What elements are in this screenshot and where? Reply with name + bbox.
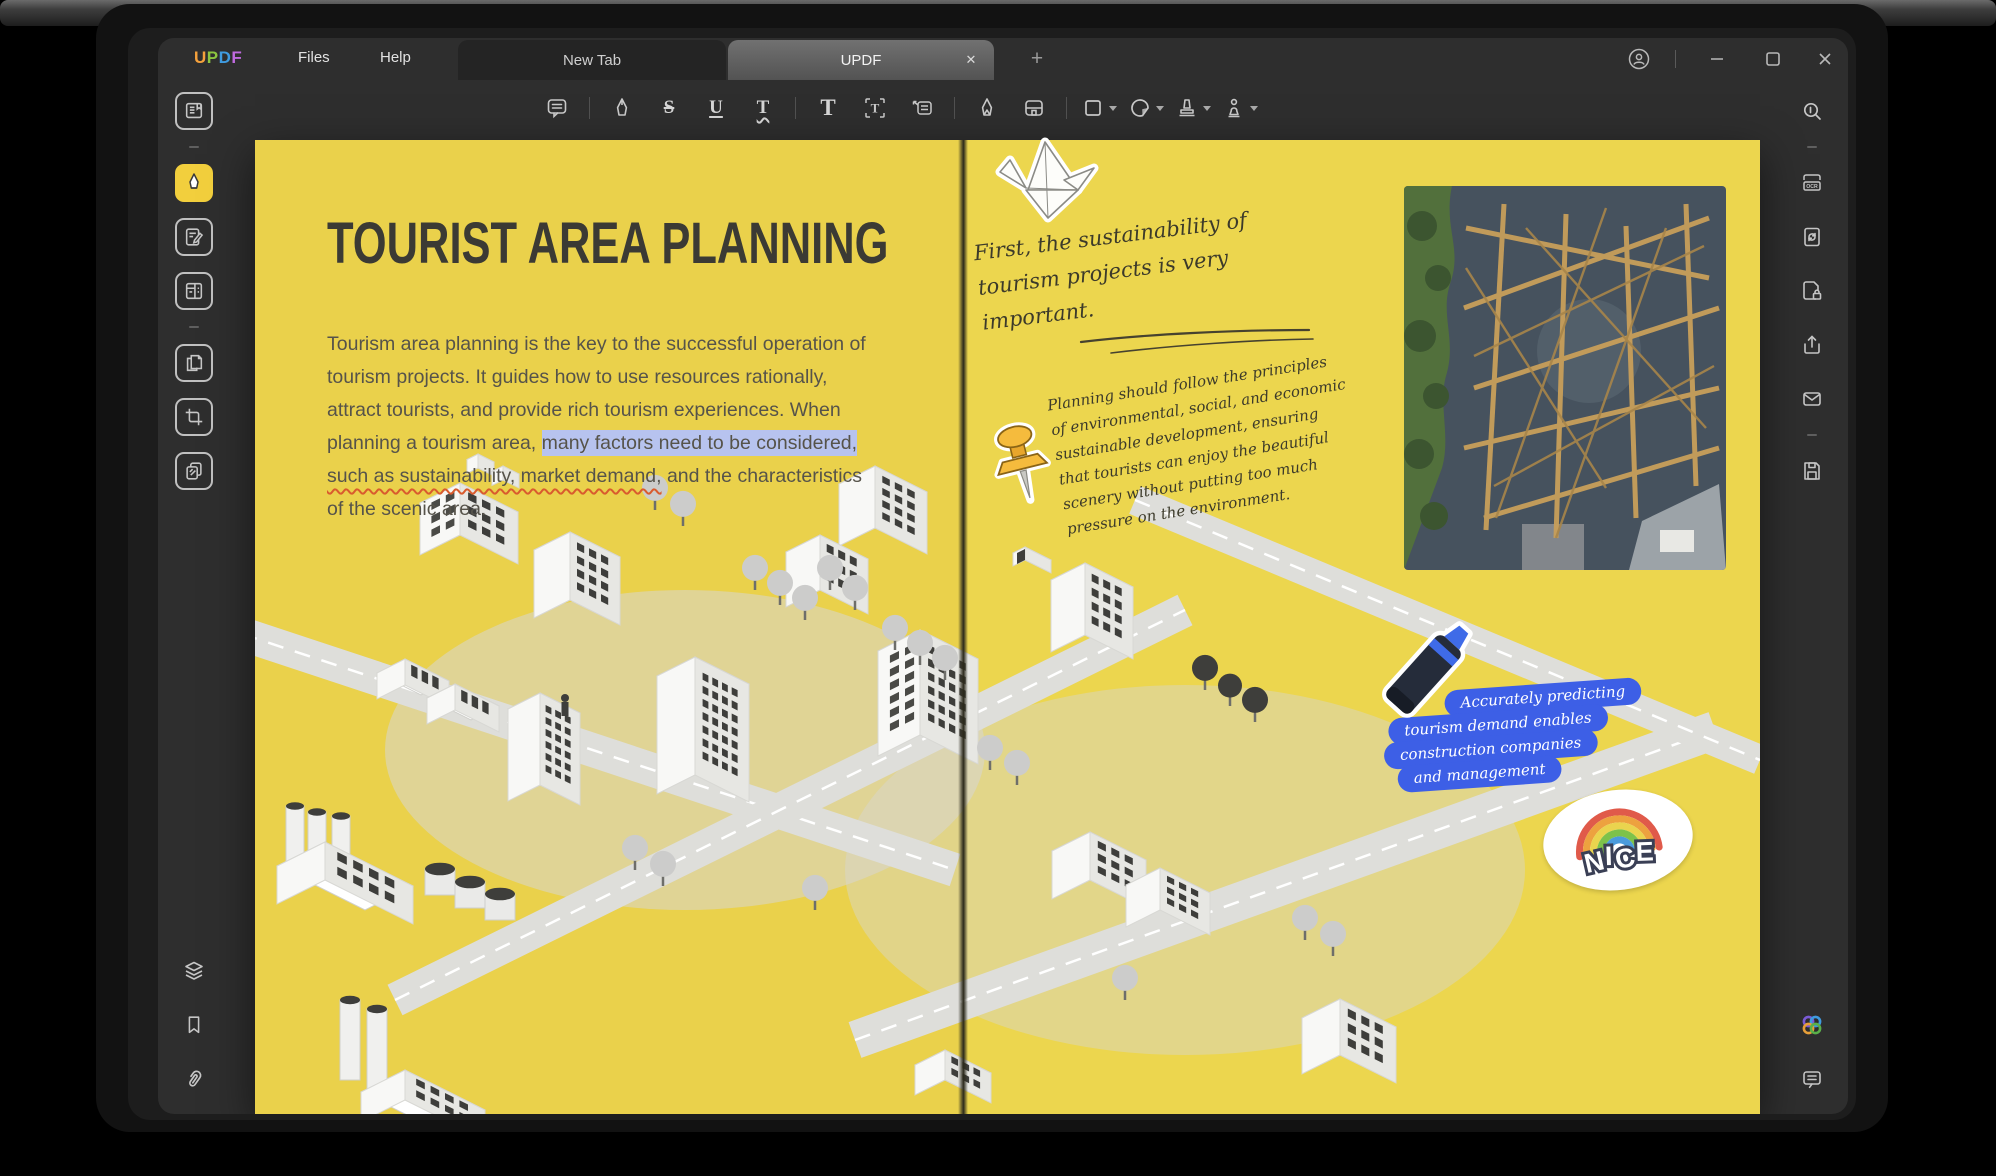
stamp-icon xyxy=(1175,96,1199,120)
body-paragraph: Tourism area planning is the key to the … xyxy=(327,328,912,526)
squiggly-underline-tool-button[interactable]: T xyxy=(744,90,782,126)
sidebar-item-email[interactable] xyxy=(1793,380,1831,418)
marker-pen-sticker[interactable] xyxy=(1363,610,1483,740)
highlighter-icon xyxy=(610,96,634,120)
updf-window: UPDF Files Help New Tab UPDF ✕ + xyxy=(128,28,1856,1120)
sidebar-item-bookmarks[interactable] xyxy=(175,1006,213,1044)
separator xyxy=(954,97,955,119)
sidebar-item-convert[interactable] xyxy=(1793,218,1831,256)
bookmark-icon xyxy=(183,1014,205,1036)
comment-tool-button[interactable] xyxy=(538,90,576,126)
chevron-down-icon xyxy=(1250,106,1258,111)
text-comment-tool-button[interactable]: T xyxy=(809,90,847,126)
underline-tool-button[interactable]: U xyxy=(697,90,735,126)
separator xyxy=(1066,97,1067,119)
pen-icon xyxy=(975,96,999,120)
sidebar-item-ai-assistant[interactable] xyxy=(1793,1006,1831,1044)
right-sidebar: OCR xyxy=(1776,84,1848,1114)
separator xyxy=(189,146,199,148)
separator xyxy=(189,326,199,328)
sidebar-item-ocr[interactable]: OCR xyxy=(1793,164,1831,202)
text-callout-icon xyxy=(910,96,934,120)
sidebar-item-thumbnails[interactable] xyxy=(175,952,213,990)
crane-sticker[interactable] xyxy=(990,136,1100,236)
highlight-annotation[interactable]: many factors need to be considered, xyxy=(542,430,857,456)
text-icon: T xyxy=(820,95,835,121)
maximize-button[interactable] xyxy=(1760,46,1786,72)
separator xyxy=(1807,146,1817,148)
signature-icon xyxy=(1222,96,1246,120)
logo-letter: F xyxy=(231,48,242,67)
page-spine xyxy=(958,140,968,1114)
new-tab-button[interactable]: + xyxy=(1024,46,1050,72)
close-window-button[interactable] xyxy=(1812,46,1838,72)
save-icon xyxy=(1800,459,1824,483)
pushpin-sticker[interactable] xyxy=(981,416,1061,508)
squiggly-icon: T xyxy=(757,97,770,119)
laptop-screen: UPDF Files Help New Tab UPDF ✕ + xyxy=(96,4,1888,1132)
separator xyxy=(795,97,796,119)
logo-letter: D xyxy=(219,48,232,67)
sidebar-item-protect[interactable] xyxy=(1793,272,1831,310)
document-canvas[interactable]: TOURIST AREA PLANNING Tourism area plann… xyxy=(255,140,1760,1114)
sidebar-item-save[interactable] xyxy=(1793,452,1831,490)
convert-icon xyxy=(1800,225,1824,249)
sidebar-item-page-tools[interactable] xyxy=(175,344,213,382)
sidebar-item-comment[interactable] xyxy=(175,164,213,202)
app-logo: UPDF xyxy=(194,48,242,68)
logo-letter: U xyxy=(194,48,207,67)
svg-text:T: T xyxy=(871,101,880,116)
close-tab-icon[interactable]: ✕ xyxy=(962,51,980,69)
menu-help[interactable]: Help xyxy=(380,49,411,66)
strikeout-icon: S xyxy=(664,97,675,119)
construction-photo[interactable] xyxy=(1404,186,1726,570)
sidebar-item-compare[interactable] xyxy=(175,452,213,490)
crop-icon xyxy=(183,406,205,428)
separator xyxy=(1675,50,1676,68)
paragraph-text: and the characteristics xyxy=(662,465,863,487)
reader-icon xyxy=(183,100,205,122)
sidebar-item-organize-pages[interactable] xyxy=(175,272,213,310)
eraser-tool-button[interactable] xyxy=(1015,90,1053,126)
left-sidebar xyxy=(158,84,230,1114)
sticker-icon xyxy=(1128,96,1152,120)
account-icon xyxy=(1627,47,1651,71)
signature-tool-button[interactable] xyxy=(1221,90,1259,126)
laptop: UPDF Files Help New Tab UPDF ✕ + xyxy=(0,0,1996,1176)
paperclip-icon xyxy=(182,1067,206,1091)
paragraph-text: tourism projects. It guides how to use r… xyxy=(327,366,827,388)
sidebar-item-crop-pages[interactable] xyxy=(175,398,213,436)
underline-flourish xyxy=(1077,326,1317,360)
titlebar: UPDF Files Help New Tab UPDF ✕ + xyxy=(158,38,1848,80)
eraser-icon xyxy=(1022,96,1046,120)
sidebar-item-edit-pdf[interactable] xyxy=(175,218,213,256)
menu-files[interactable]: Files xyxy=(298,49,330,66)
text-box-tool-button[interactable]: T xyxy=(856,90,894,126)
minimize-icon xyxy=(1706,48,1728,70)
rectangle-shape-icon xyxy=(1081,96,1105,120)
chevron-down-icon xyxy=(1109,106,1117,111)
paragraph-text: of the scenic area. xyxy=(327,498,486,520)
share-icon xyxy=(1800,333,1824,357)
nice-sticker[interactable]: NICE xyxy=(1537,781,1698,899)
sidebar-item-reader[interactable] xyxy=(175,92,213,130)
annotation-toolbar: S U T T T xyxy=(538,84,1259,132)
paragraph-text: planning a tourism area, xyxy=(327,432,542,454)
edit-icon xyxy=(183,226,205,248)
pen-tool-button[interactable] xyxy=(968,90,1006,126)
organize-pages-icon xyxy=(183,280,205,302)
mail-icon xyxy=(1800,387,1824,411)
text-box-icon: T xyxy=(862,95,888,121)
sidebar-item-search[interactable] xyxy=(1793,92,1831,130)
logo-letter: P xyxy=(207,48,219,67)
comment-mode-icon xyxy=(182,171,206,195)
close-icon xyxy=(1815,49,1835,69)
text-callout-tool-button[interactable] xyxy=(903,90,941,126)
page-title: TOURIST AREA PLANNING xyxy=(327,210,888,277)
compare-pages-icon xyxy=(183,460,205,482)
paragraph-text: attract tourists, and provide rich touri… xyxy=(327,399,841,421)
sidebar-item-feedback[interactable] xyxy=(1793,1060,1831,1098)
sidebar-item-attachments[interactable] xyxy=(175,1060,213,1098)
feedback-icon xyxy=(1800,1067,1824,1091)
highlighter-tool-button[interactable] xyxy=(603,90,641,126)
sidebar-item-share[interactable] xyxy=(1793,326,1831,364)
underline-icon: U xyxy=(709,97,723,119)
maximize-icon xyxy=(1763,49,1783,69)
svg-text:OCR: OCR xyxy=(1806,184,1818,190)
ocr-icon: OCR xyxy=(1800,171,1824,195)
app-surface: UPDF Files Help New Tab UPDF ✕ + xyxy=(158,38,1848,1114)
shape-tool-button[interactable] xyxy=(1080,90,1118,126)
tab-updf[interactable]: UPDF ✕ xyxy=(728,40,994,80)
account-button[interactable] xyxy=(1626,46,1652,72)
paragraph-text: Tourism area planning is the key to the … xyxy=(327,333,866,355)
tab-label: UPDF xyxy=(841,52,882,69)
comment-icon xyxy=(545,96,569,120)
stamp-tool-button[interactable] xyxy=(1174,90,1212,126)
squiggly-annotation[interactable]: such as sustainability, market demand, xyxy=(327,465,662,487)
pages-copy-icon xyxy=(183,352,205,374)
minimize-button[interactable] xyxy=(1704,46,1730,72)
chevron-down-icon xyxy=(1156,106,1164,111)
strikeout-tool-button[interactable]: S xyxy=(650,90,688,126)
search-icon xyxy=(1800,99,1824,123)
separator xyxy=(1807,434,1817,436)
tab-label: New Tab xyxy=(563,52,621,69)
tab-new-tab[interactable]: New Tab xyxy=(458,40,726,80)
chevron-down-icon xyxy=(1203,106,1211,111)
protect-lock-icon xyxy=(1800,279,1824,303)
ai-assistant-icon xyxy=(1799,1012,1825,1038)
layers-icon xyxy=(182,959,206,983)
separator xyxy=(589,97,590,119)
sticker-tool-button[interactable] xyxy=(1127,90,1165,126)
